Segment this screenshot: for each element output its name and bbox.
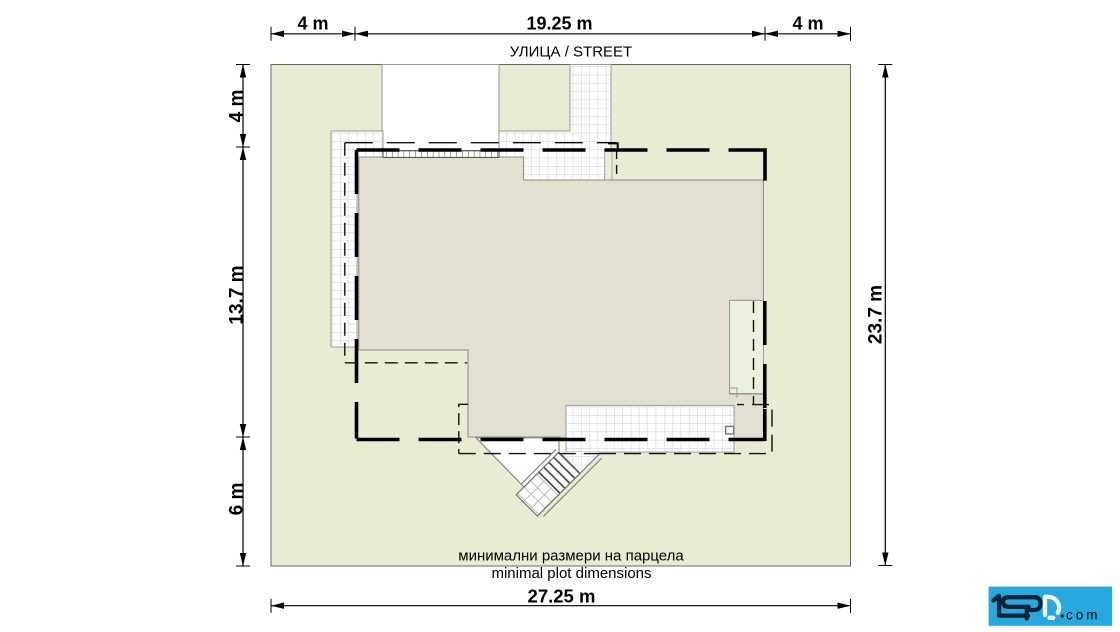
- svg-text:27.25 m: 27.25 m: [528, 586, 596, 607]
- svg-text:4 m: 4 m: [297, 14, 328, 34]
- svg-text:минимални размери на парцела: минимални размери на парцела: [458, 548, 684, 565]
- svg-text:19.25 m: 19.25 m: [526, 14, 592, 34]
- svg-text:УЛИЦА / STREET: УЛИЦА / STREET: [510, 44, 632, 61]
- svg-text:4 m: 4 m: [227, 90, 248, 123]
- svg-text:13.7 m: 13.7 m: [227, 265, 248, 324]
- svg-text:23.7 m: 23.7 m: [866, 285, 887, 344]
- svg-text:minimal plot dimensions: minimal plot dimensions: [491, 565, 651, 582]
- svg-text:com: com: [1066, 608, 1101, 623]
- svg-text:6 m: 6 m: [227, 483, 248, 516]
- svg-text:4 m: 4 m: [792, 14, 823, 34]
